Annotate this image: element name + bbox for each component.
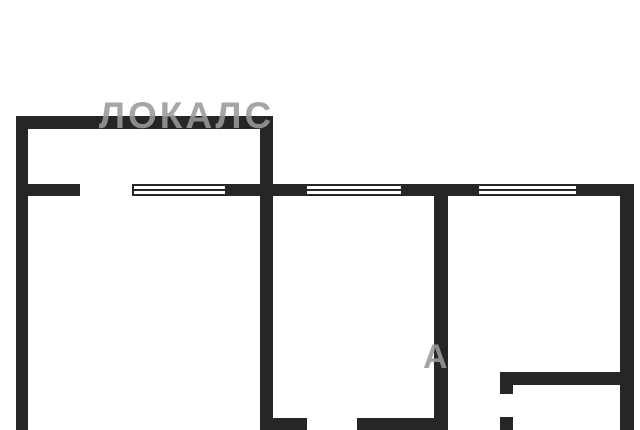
top-wall [16,116,273,129]
window-sill-stub-left [28,184,80,196]
window-2 [305,184,403,196]
window-1 [132,184,227,196]
window-3 [477,184,578,196]
middle-room-divider-wall [434,196,448,430]
window-1-mullion-line [134,189,225,191]
hall-door-jamb-bottom [500,417,513,430]
right-wall [620,196,634,430]
window-3-mullion-line [479,189,576,191]
window-pier-3 [578,184,634,196]
hall-door-jamb-top [500,372,513,394]
left-wall [16,116,28,430]
bottom-wall-left-of-door [260,418,307,430]
window-2-mullion-line [307,189,401,191]
floor-plan: ЛОКАЛС А [0,0,640,430]
center-wall [260,116,273,430]
window-pier-2 [403,184,477,196]
window-pier-1 [227,184,305,196]
bottom-wall-right-of-door [357,418,434,430]
hall-wall-horizontal [500,372,634,385]
